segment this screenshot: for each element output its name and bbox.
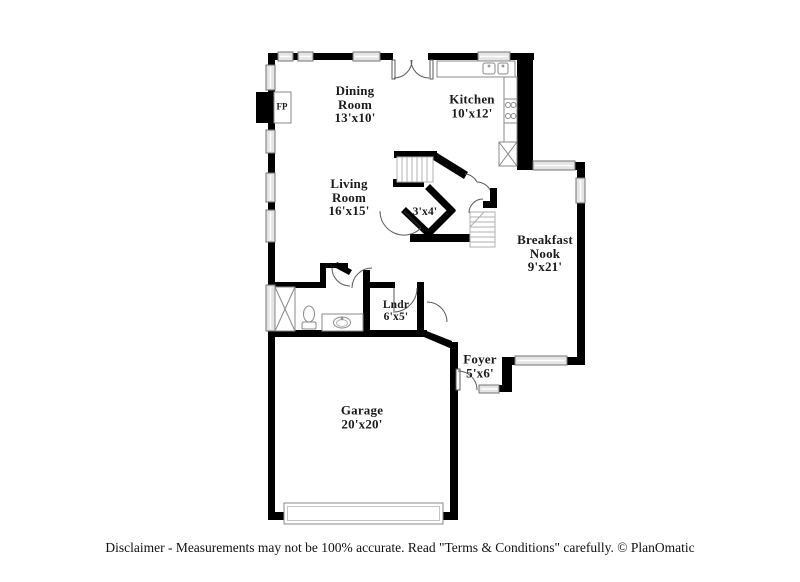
room-dimensions: 20'x20' xyxy=(341,417,383,431)
room-label-powder: 3'x4' xyxy=(413,206,438,218)
room-name: Foyer xyxy=(463,353,496,367)
room-name: Room xyxy=(328,190,369,204)
room-name: Breakfast xyxy=(517,233,573,247)
wall xyxy=(525,162,533,170)
pantry-icon xyxy=(499,142,517,166)
room-dimensions: 16'x15' xyxy=(328,204,369,218)
room-name: Dining xyxy=(334,84,375,98)
wall xyxy=(410,234,471,242)
wall xyxy=(268,242,275,285)
burner xyxy=(506,103,511,108)
wall xyxy=(567,357,585,365)
wall xyxy=(370,282,395,288)
room-dimensions: 9'x21' xyxy=(517,260,573,274)
door-arc xyxy=(465,174,477,182)
wall xyxy=(483,201,497,208)
faucet-dot xyxy=(341,318,343,320)
wall xyxy=(577,203,585,365)
room-label-dining: Dining Room 13'x10' xyxy=(334,84,375,125)
garage-door xyxy=(284,503,443,524)
wall xyxy=(417,282,424,288)
room-name: Garage xyxy=(341,404,383,418)
fireplace-label: FP xyxy=(277,103,288,112)
door-arc xyxy=(394,60,412,78)
fireplace-chase xyxy=(256,92,274,123)
stairs-upper xyxy=(397,157,433,182)
wall xyxy=(428,53,478,60)
room-label-living: Living Room 16'x15' xyxy=(328,177,369,218)
faucet-dot xyxy=(488,65,490,67)
walls-layer xyxy=(256,53,585,520)
room-name: Lndr xyxy=(383,299,409,311)
stairs-lower xyxy=(470,212,495,247)
room-name: Room xyxy=(334,97,375,111)
wall xyxy=(293,53,298,60)
room-name: Nook xyxy=(517,246,573,260)
room-dimensions: 3'x4' xyxy=(413,206,438,218)
wall xyxy=(498,385,512,392)
windows-layer xyxy=(266,52,585,393)
room-name: Living xyxy=(328,177,369,191)
wall xyxy=(313,53,353,60)
wall xyxy=(268,512,284,520)
door-leaf xyxy=(456,369,460,390)
room-label-laundry: Lndr 6'x5' xyxy=(383,299,409,323)
door-arc xyxy=(477,182,490,190)
shower-icon xyxy=(275,287,295,331)
toilet-tank-icon xyxy=(302,322,316,329)
floorplan-svg xyxy=(0,0,800,582)
wall xyxy=(380,53,393,60)
room-label-closet: 3'x2' xyxy=(325,263,337,269)
floorplan-page: Dining Room 13'x10' Kitchen 10'x12' Livi… xyxy=(0,0,800,582)
wall-diagonal xyxy=(430,151,468,179)
burner xyxy=(506,114,511,119)
door-arc xyxy=(411,60,429,78)
toilet-bowl-icon xyxy=(304,306,315,322)
window-glass-lines xyxy=(271,57,581,390)
room-label-breakfast-nook: Breakfast Nook 9'x21' xyxy=(517,233,573,274)
bath-fixtures xyxy=(275,287,363,331)
room-label-kitchen: Kitchen 10'x12' xyxy=(449,93,494,120)
door-leaf xyxy=(430,60,433,79)
room-label-garage: Garage 20'x20' xyxy=(341,404,383,431)
wall xyxy=(577,162,585,178)
wall-diagonal xyxy=(424,330,452,349)
wall xyxy=(517,53,533,170)
burner xyxy=(511,103,516,108)
room-dimensions: 3'x2' xyxy=(325,263,337,269)
room-dimensions: 5'x6' xyxy=(463,366,496,380)
wall xyxy=(363,270,370,333)
room-label-foyer: Foyer 5'x6' xyxy=(463,353,496,380)
wall xyxy=(268,53,275,65)
faucet-dot xyxy=(502,65,504,67)
vanity-sink-inner xyxy=(337,320,348,327)
room-dimensions: 6'x5' xyxy=(383,311,409,323)
wall xyxy=(268,153,275,173)
room-dimensions: 10'x12' xyxy=(449,106,494,120)
door-arc xyxy=(469,199,483,213)
wall xyxy=(268,202,275,210)
room-dimensions: 13'x10' xyxy=(334,111,375,125)
wall xyxy=(268,337,275,520)
room-name: FP xyxy=(277,103,288,112)
room-name: Kitchen xyxy=(449,93,494,107)
wall xyxy=(417,288,424,333)
disclaimer-text: Disclaimer - Measurements may not be 100… xyxy=(0,540,800,556)
burner xyxy=(511,114,516,119)
door-arc xyxy=(427,302,447,322)
door-leaf xyxy=(392,60,395,79)
